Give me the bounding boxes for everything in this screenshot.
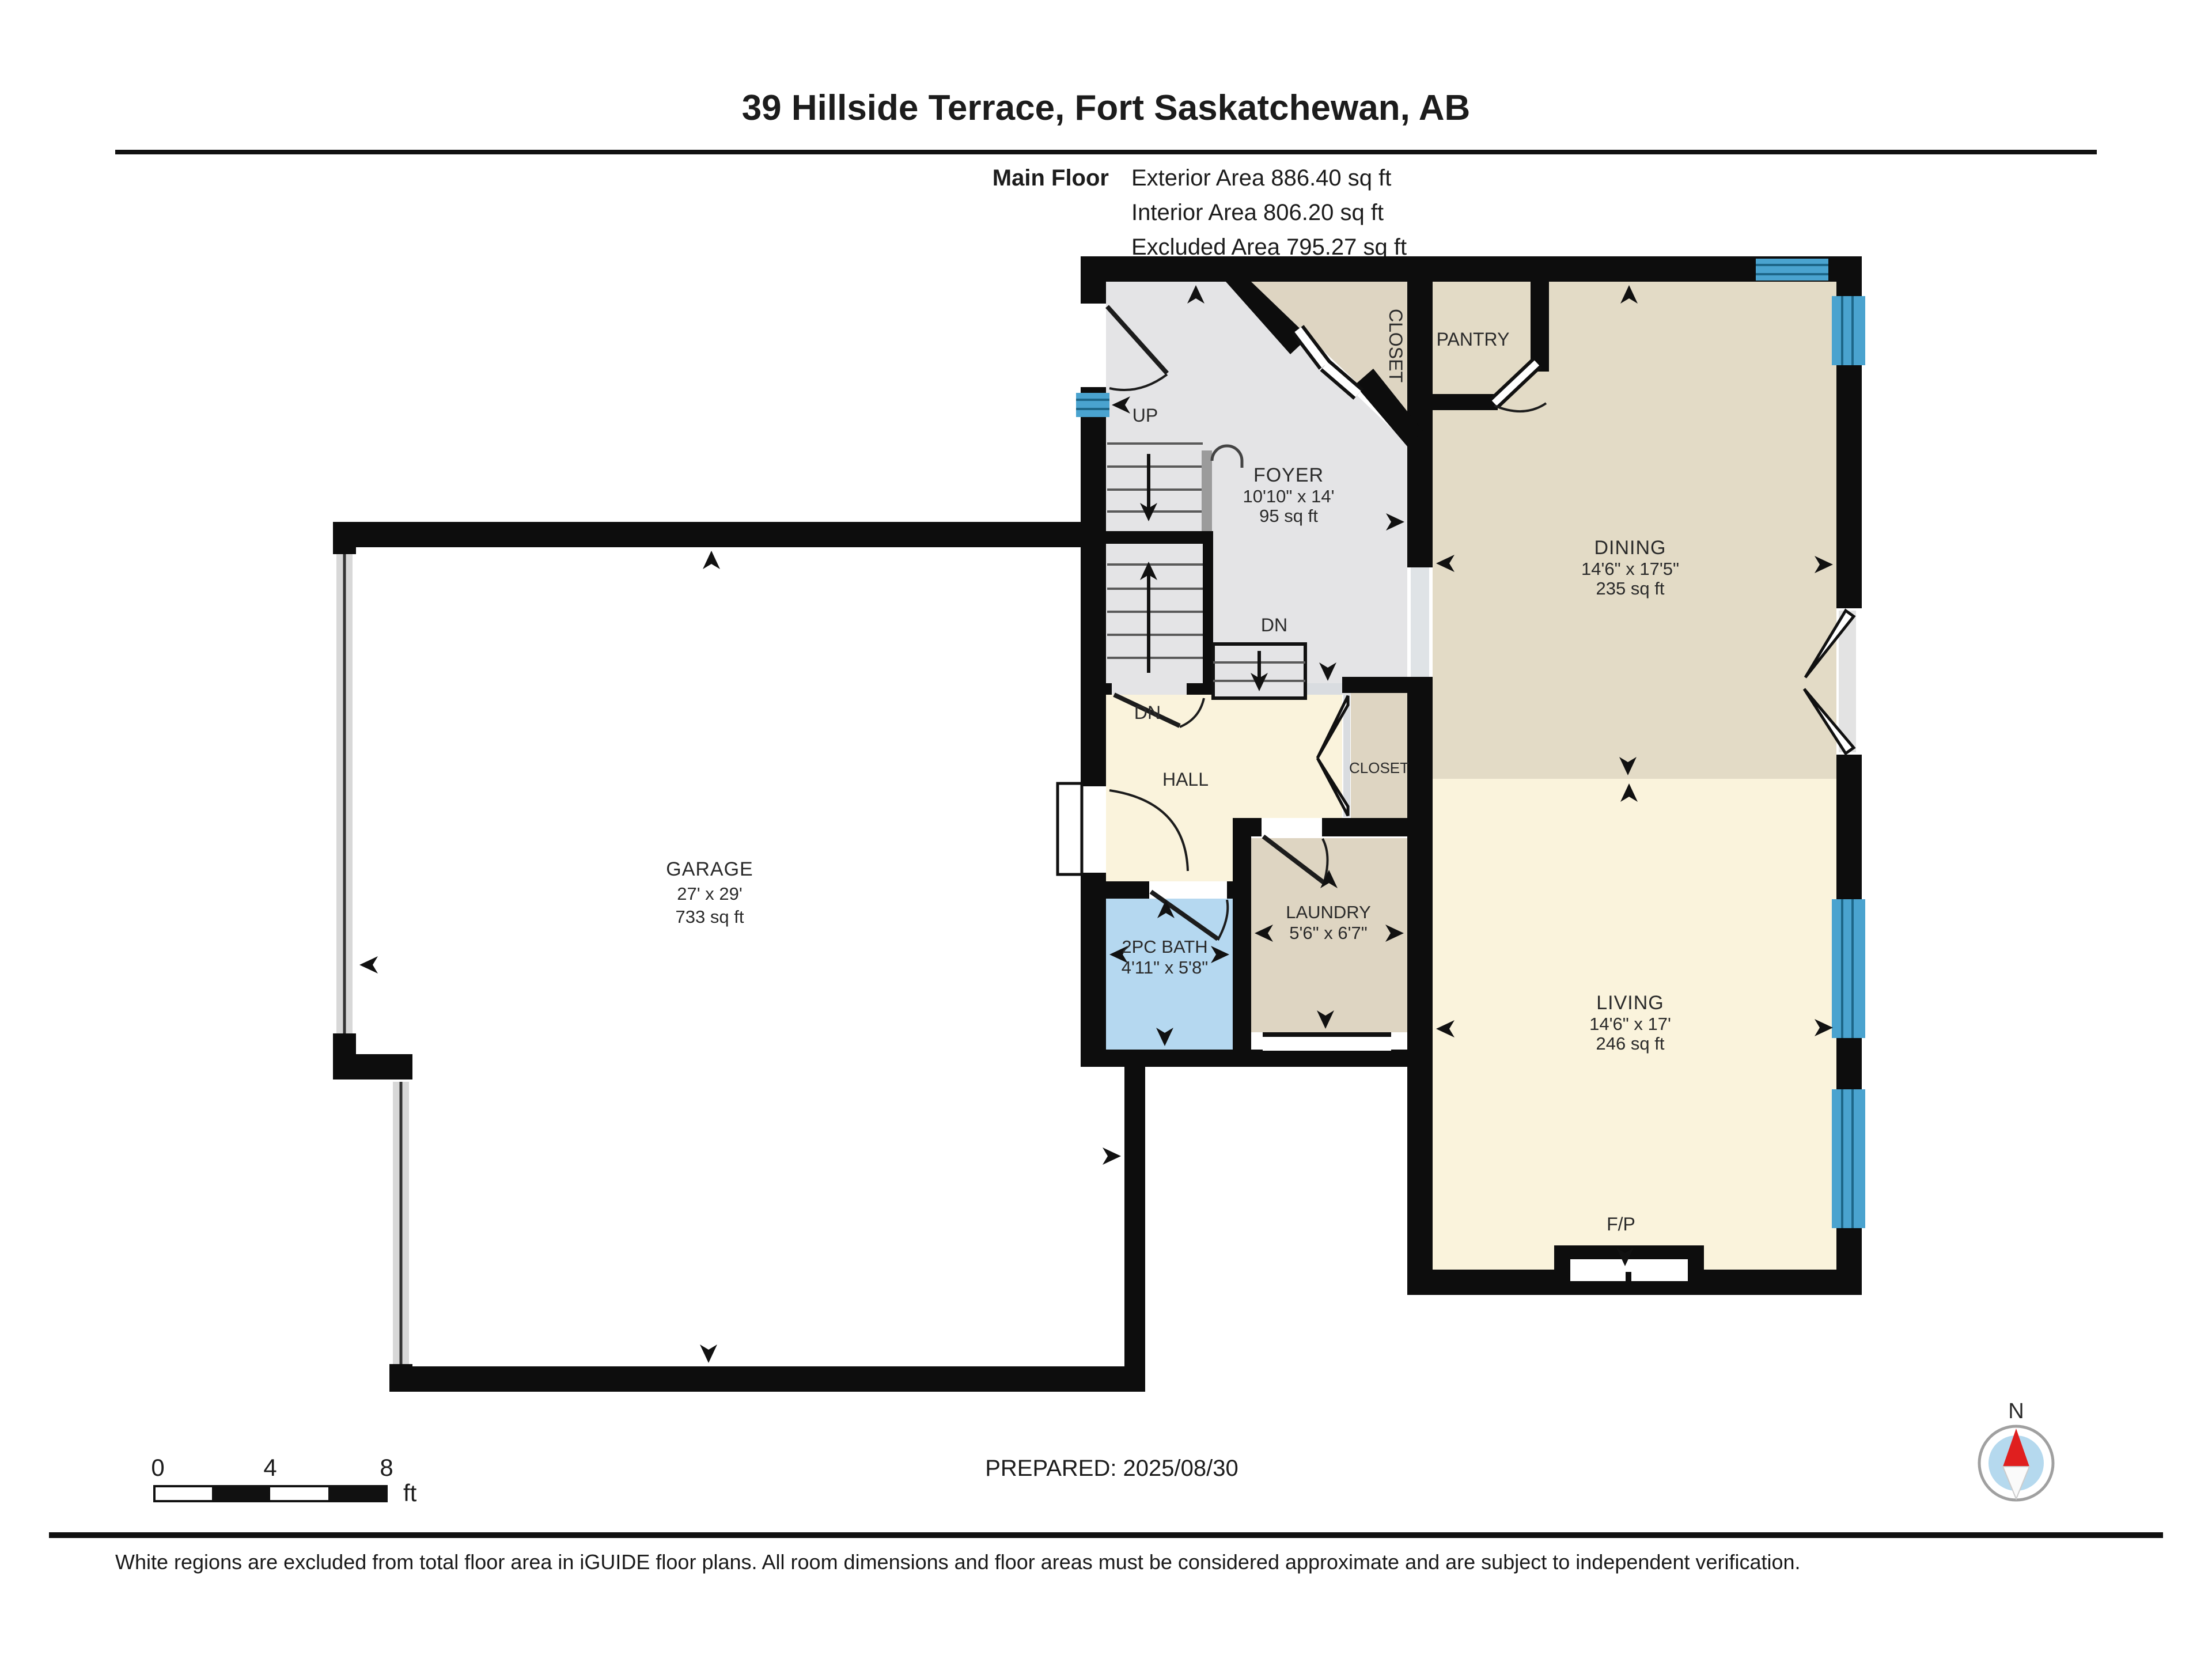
scale-tick-0: 0 [151, 1454, 164, 1481]
compass: N [1979, 1399, 2053, 1500]
living-area: 246 sq ft [1596, 1033, 1665, 1054]
dining-area: 235 sq ft [1596, 578, 1665, 599]
pantry-label: PANTRY [1437, 329, 1510, 350]
foyer-closet-label: CLOSET [1385, 309, 1406, 382]
dining-room [1433, 282, 1836, 779]
foyer-dims: 10'10" x 14' [1243, 486, 1334, 506]
dn-foyer-label: DN [1261, 615, 1287, 635]
window-dining-top [1756, 259, 1828, 281]
garage-door-1 [336, 554, 353, 1033]
window-living-2 [1832, 1089, 1865, 1228]
dining-label: DINING [1594, 537, 1666, 559]
hall-label: HALL [1162, 769, 1209, 790]
foyer-label: FOYER [1253, 464, 1324, 486]
living-label: LIVING [1596, 992, 1664, 1014]
header: 39 Hillside Terrace, Fort Saskatchewan, … [115, 88, 2097, 260]
page-title: 39 Hillside Terrace, Fort Saskatchewan, … [742, 88, 1471, 128]
foyer-area: 95 sq ft [1259, 506, 1318, 526]
garage-door-2 [393, 1082, 409, 1364]
foyer-dining-opening [1411, 567, 1429, 677]
laundry-dims: 5'6" x 6'7" [1289, 923, 1368, 943]
hall-closet-label: CLOSET [1349, 759, 1409, 777]
bath-label: 2PC BATH [1122, 937, 1207, 957]
hall-closet-room [1351, 693, 1407, 818]
compass-n-label: N [2008, 1399, 2024, 1423]
title-divider [115, 150, 2097, 154]
up-label: UP [1132, 405, 1158, 426]
disclaimer-text: White regions are excluded from total fl… [115, 1550, 1801, 1574]
prepared-date: PREPARED: 2025/08/30 [985, 1456, 1238, 1481]
foyer-hall-opening [1305, 683, 1342, 695]
floorplan-page: 39 Hillside Terrace, Fort Saskatchewan, … [0, 0, 2212, 1659]
scale-unit: ft [403, 1479, 417, 1506]
interior-area: Interior Area 806.20 sq ft [1131, 200, 1384, 225]
scale-tick-4: 4 [263, 1454, 276, 1481]
window-laundry [1263, 1032, 1391, 1051]
window-dining-right [1832, 296, 1865, 365]
exterior-area: Exterior Area 886.40 sq ft [1131, 165, 1391, 191]
bath-dims: 4'11" x 5'8" [1122, 957, 1208, 978]
room-fills [1106, 282, 1836, 1270]
floor-label: Main Floor [993, 165, 1109, 191]
window-foyer [1076, 393, 1109, 417]
stairs-dn-hall [1213, 644, 1305, 698]
scale-tick-8: 8 [380, 1454, 393, 1481]
garage-label: GARAGE [666, 858, 753, 880]
fireplace-label: F/P [1607, 1214, 1635, 1234]
footer: White regions are excluded from total fl… [49, 1532, 2163, 1574]
footer-divider [49, 1532, 2163, 1538]
floorplan-canvas: 39 Hillside Terrace, Fort Saskatchewan, … [0, 0, 2212, 1659]
living-dims: 14'6" x 17' [1589, 1014, 1671, 1034]
laundry-label: LAUNDRY [1286, 902, 1371, 922]
excluded-area: Excluded Area 795.27 sq ft [1131, 234, 1407, 260]
garage-area: 733 sq ft [676, 907, 744, 927]
garage-dims: 27' x 29' [677, 884, 743, 904]
dining-dims: 14'6" x 17'5" [1581, 559, 1679, 579]
dn-hall-label: DN [1134, 702, 1161, 723]
window-living-1 [1832, 899, 1865, 1038]
scale-bar: 0 4 8 ft [151, 1454, 416, 1506]
